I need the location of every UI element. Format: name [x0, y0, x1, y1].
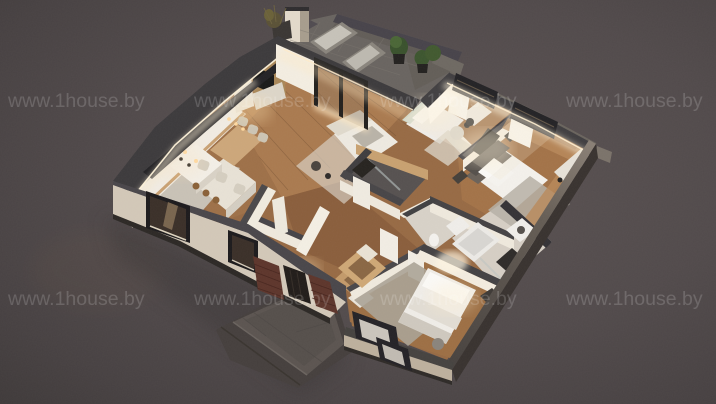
svg-text:www.1house.by: www.1house.by: [7, 90, 145, 112]
svg-text:www.1house.by: www.1house.by: [565, 90, 703, 112]
svg-text:www.1house.by: www.1house.by: [193, 288, 331, 310]
svg-text:www.1house.by: www.1house.by: [7, 288, 145, 310]
svg-text:www.1house.by: www.1house.by: [379, 90, 517, 112]
svg-text:www.1house.by: www.1house.by: [379, 288, 517, 310]
svg-text:www.1house.by: www.1house.by: [565, 288, 703, 310]
svg-text:www.1house.by: www.1house.by: [193, 90, 331, 112]
